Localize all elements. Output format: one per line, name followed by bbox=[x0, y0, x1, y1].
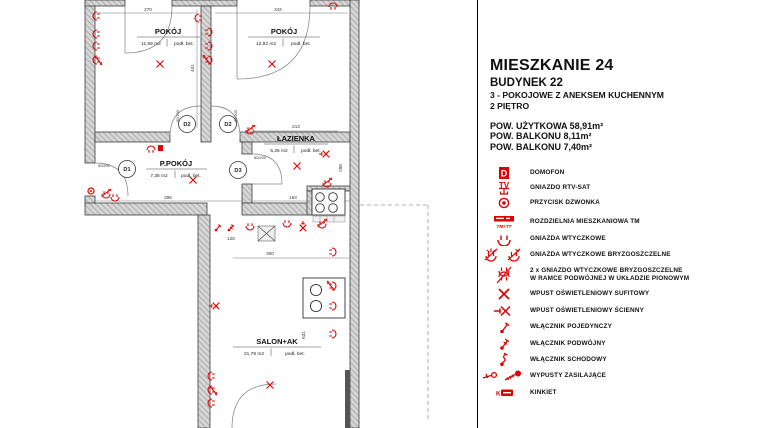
shaft-icon bbox=[258, 226, 275, 241]
area-balcony-1: POW. BALKONU 8,11m² bbox=[490, 132, 750, 141]
legend-section-2: TM+TT ROZDZIELNIA MIESZKANIOWA TM GNIAZD… bbox=[478, 214, 756, 401]
stove-icon bbox=[312, 189, 345, 215]
legend-item-domofon: D DOMOFON bbox=[478, 165, 756, 180]
wall-light-icon bbox=[478, 304, 530, 318]
doorbell-symbol bbox=[88, 188, 94, 194]
legend-item-wlacznik-schodowy: WŁĄCZNIK SCHODOWY bbox=[478, 352, 756, 368]
svg-text:ŁAZIENKA: ŁAZIENKA bbox=[277, 134, 315, 143]
svg-text:125: 125 bbox=[227, 236, 235, 241]
rtv-sat-icon: TV bbox=[478, 181, 530, 196]
svg-text:270: 270 bbox=[144, 7, 152, 12]
double-switch-icon bbox=[478, 336, 530, 351]
svg-text:D: D bbox=[501, 168, 508, 178]
svg-text:90/200: 90/200 bbox=[98, 163, 111, 168]
svg-text:631: 631 bbox=[301, 331, 306, 339]
svg-text:80/200: 80/200 bbox=[254, 155, 267, 160]
legend-item-dzwonek: PRZYCISK DZWONKA bbox=[478, 196, 756, 211]
legend-item-wlacznik-pojedynczy: WŁĄCZNIK POJEDYNCZY bbox=[478, 319, 756, 335]
sink-icon bbox=[303, 278, 345, 318]
double-splashproof-socket-icon bbox=[478, 264, 530, 285]
kinkiet-icon: K bbox=[478, 386, 530, 399]
svg-text:SALON+AK: SALON+AK bbox=[256, 337, 298, 346]
room-labels: POKÓJ 11,59 m2 podł. bet. POKÓJ 12,92 m2… bbox=[137, 27, 328, 357]
legend-item-gniazda-2x: 2 x GNIAZDO WTYCZKOWE BRYZGOSZCZELNEW RA… bbox=[478, 263, 756, 286]
door-tags: D1 90/200 D2 80/200 D2 80/200 D3 80/200 bbox=[98, 109, 267, 178]
svg-text:podł. bet.: podł. bet. bbox=[285, 351, 305, 357]
svg-text:12,92 m2: 12,92 m2 bbox=[256, 41, 276, 47]
svg-text:D2: D2 bbox=[183, 122, 190, 128]
svg-text:300: 300 bbox=[266, 251, 274, 256]
legend-item-rtv: TV GNIAZDO RTV-SAT bbox=[478, 180, 756, 195]
legend-item-kinkiet: K KINKIET bbox=[478, 385, 756, 401]
legend-section-1: D DOMOFON TV GNIAZDO RTV-SAT PRZYCISK DZ… bbox=[478, 165, 756, 211]
room-label-ppokoj: P.POKÓJ 7,36 m2 podł. bet. bbox=[146, 159, 207, 179]
area-usable: POW. UŻYTKOWA 58,91m² bbox=[490, 122, 750, 131]
svg-text:288: 288 bbox=[338, 164, 343, 172]
legend-item-gniazda: GNIAZDA WTYCZKOWE bbox=[478, 230, 756, 246]
svg-text:podł. bet.: podł. bet. bbox=[174, 41, 194, 47]
legend-item-rozdzielnia: TM+TT ROZDZIELNIA MIESZKANIOWA TM bbox=[478, 214, 756, 230]
single-switch-icon bbox=[478, 320, 530, 335]
svg-text:11,59 m2: 11,59 m2 bbox=[141, 41, 161, 47]
floor-plan: 270 342 441 395 153 213 288 125 300 631 … bbox=[0, 0, 478, 428]
svg-text:21,79 m2: 21,79 m2 bbox=[244, 351, 264, 357]
stair-switch-icon bbox=[478, 352, 530, 367]
legend-item-wpust-scienny: WPUST OŚWIETLENIOWY ŚCIENNY bbox=[478, 303, 756, 319]
svg-text:80/200: 80/200 bbox=[175, 109, 180, 122]
power-outlet-icons bbox=[478, 369, 530, 383]
svg-text:D2: D2 bbox=[224, 122, 231, 128]
balcony-outline bbox=[360, 205, 428, 420]
floor-line: 2 PIĘTRO bbox=[490, 102, 750, 111]
svg-text:D3: D3 bbox=[234, 168, 241, 174]
svg-text:213: 213 bbox=[292, 124, 300, 129]
svg-text:7,36 m2: 7,36 m2 bbox=[150, 173, 168, 179]
room-label-salon: SALON+AK 21,79 m2 podł. bet. bbox=[233, 337, 321, 357]
legend-item-wpust-sufitowy: WPUST OŚWIETLENIOWY SUFITOWY bbox=[478, 286, 756, 302]
building-title: BUDYNEK 22 bbox=[490, 77, 750, 89]
info-panel: MIESZKANIE 24 BUDYNEK 22 3 - POKOJOWE Z … bbox=[478, 0, 760, 428]
svg-text:P.POKÓJ: P.POKÓJ bbox=[160, 159, 192, 168]
type-line: 3 - POKOJOWE Z ANEKSEM KUCHENNYM bbox=[490, 91, 750, 100]
svg-text:342: 342 bbox=[274, 7, 282, 12]
counter-icon bbox=[313, 216, 345, 222]
svg-text:podł. bet.: podł. bet. bbox=[291, 41, 311, 47]
svg-text:395: 395 bbox=[164, 195, 172, 200]
doorbell-icon bbox=[478, 196, 530, 210]
svg-text:153: 153 bbox=[289, 195, 297, 200]
distribution-board-icon: TM+TT bbox=[478, 214, 530, 230]
socket-icon bbox=[478, 232, 530, 246]
apartment-title: MIESZKANIE 24 bbox=[490, 58, 750, 75]
floorplan-sheet: 270 342 441 395 153 213 288 125 300 631 … bbox=[0, 0, 760, 428]
splashproof-socket-icons bbox=[478, 247, 530, 262]
svg-text:80/200: 80/200 bbox=[233, 109, 238, 122]
svg-text:POKÓJ: POKÓJ bbox=[155, 27, 181, 36]
svg-text:TM+TT: TM+TT bbox=[497, 224, 513, 229]
svg-text:D1: D1 bbox=[123, 167, 130, 173]
title-block: MIESZKANIE 24 BUDYNEK 22 3 - POKOJOWE Z … bbox=[490, 58, 750, 152]
balcony-door-bar bbox=[345, 370, 350, 428]
area-balcony-2: POW. BALKONU 7,40m² bbox=[490, 143, 750, 152]
svg-text:POKÓJ: POKÓJ bbox=[271, 27, 297, 36]
svg-text:podł. bet.: podł. bet. bbox=[301, 148, 321, 154]
room-label-pokoj-1: POKÓJ 11,59 m2 podł. bet. bbox=[137, 27, 200, 47]
svg-text:K: K bbox=[496, 392, 501, 398]
svg-text:5,25 m2: 5,25 m2 bbox=[270, 148, 288, 154]
room-label-pokoj-2: POKÓJ 12,92 m2 podł. bet. bbox=[248, 27, 320, 47]
legend-item-gniazda-bryzg: GNIAZDA WTYCZKOWE BRYZGOSZCZELNE bbox=[478, 247, 756, 263]
legend-item-wypusty: WYPUSTY ZASILAJĄCE bbox=[478, 368, 756, 384]
domofon-icon: D bbox=[478, 166, 530, 180]
svg-text:441: 441 bbox=[190, 64, 195, 72]
ceiling-light-icon bbox=[478, 287, 530, 301]
legend-item-wlacznik-podwojny: WŁĄCZNIK PODWÓJNY bbox=[478, 335, 756, 351]
